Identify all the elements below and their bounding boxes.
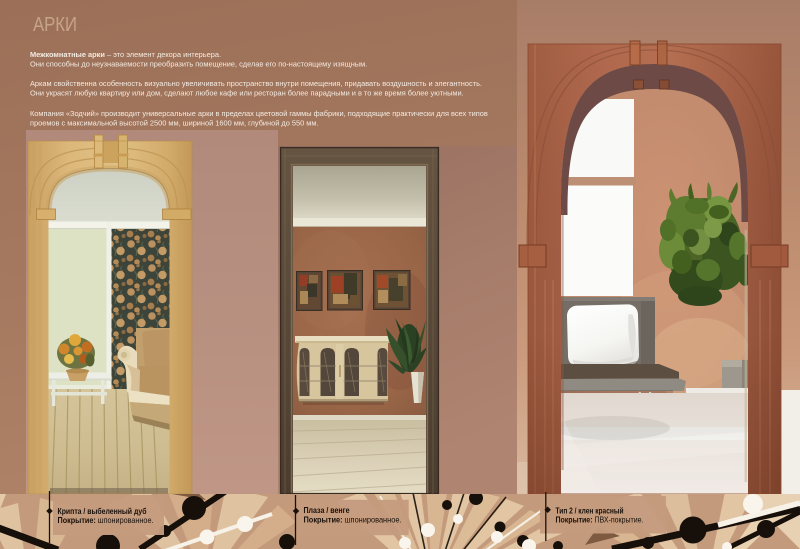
svg-text:Они украсят любую квартиру или: Они украсят любую квартиру или дом, сдел… [30,89,464,98]
svg-text:АРКИ: АРКИ [33,13,77,36]
svg-text:проемов с максимальной высотой: проемов с максимальной высотой 2500 мм, … [30,119,319,128]
svg-text:Компания «Зодчий» производит у: Компания «Зодчий» производит универсальн… [30,109,488,118]
svg-text:Покрытие: шпонированное.: Покрытие: шпонированное. [58,515,154,525]
svg-text:Покрытие: ПВХ-покрытие.: Покрытие: ПВХ-покрытие. [556,514,644,524]
svg-text:Покрытие: шпонированное.: Покрытие: шпонированное. [304,514,402,524]
svg-text:Межкомнатные арки – это элемен: Межкомнатные арки – это элемент декора и… [30,50,221,59]
svg-text:Они способны до неузнаваемости: Они способны до неузнаваемости преобрази… [30,60,367,69]
svg-text:Аркам свойственна особенность: Аркам свойственна особенность визуально … [30,79,482,88]
